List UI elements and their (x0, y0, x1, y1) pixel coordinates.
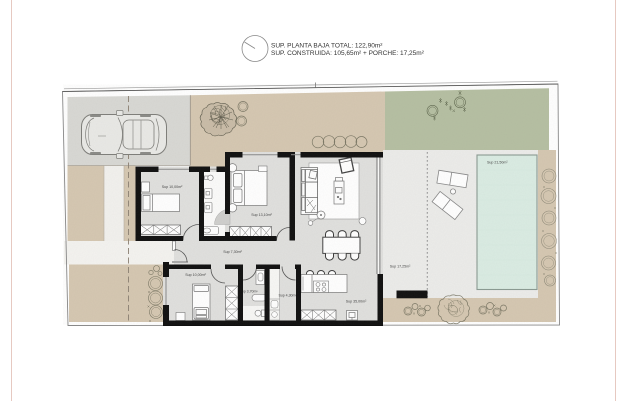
svg-text:SUP. PLANTA BAJA TOTAL: 122,90: SUP. PLANTA BAJA TOTAL: 122,90m² (271, 42, 383, 49)
svg-text:SUP. CONSTRUIDA: 105,65m² + PO: SUP. CONSTRUIDA: 105,65m² + PORCHE: 17,2… (271, 50, 425, 57)
